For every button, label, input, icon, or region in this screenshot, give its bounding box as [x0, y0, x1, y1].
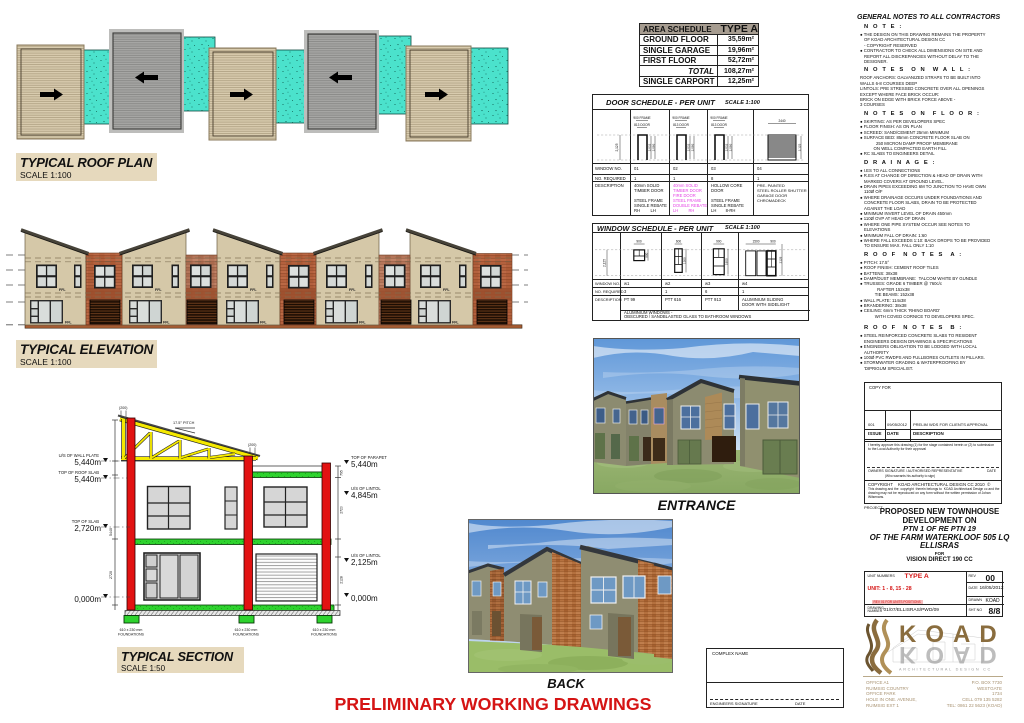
svg-text:900: 900: [770, 240, 776, 244]
svg-text:0,000m: 0,000m: [351, 594, 378, 603]
svg-text:FFL: FFL: [59, 288, 66, 292]
svg-text:2,720m: 2,720m: [74, 524, 101, 533]
svg-text:2,125: 2,125: [615, 143, 619, 151]
svg-text:(200): (200): [119, 406, 127, 410]
svg-text:813 DOOR: 813 DOOR: [673, 123, 689, 127]
svg-text:4,845m: 4,845m: [351, 491, 378, 500]
svg-text:813 DOOR: 813 DOOR: [634, 123, 650, 127]
svg-text:600: 600: [676, 240, 682, 244]
svg-text:795: 795: [340, 470, 344, 476]
svg-text:FFL: FFL: [443, 288, 450, 292]
svg-text:FOUNDATIONS: FOUNDATIONS: [311, 633, 337, 637]
svg-text:5440: 5440: [109, 528, 113, 536]
svg-text:2,086: 2,086: [729, 143, 733, 151]
svg-text:FFL: FFL: [260, 321, 267, 325]
svg-text:610 x 230 mm: 610 x 230 mm: [120, 628, 143, 632]
svg-text:2128: 2128: [340, 576, 344, 584]
svg-text:900 FRAME: 900 FRAME: [672, 116, 689, 120]
svg-text:FFL: FFL: [250, 288, 257, 292]
svg-text:2128: 2128: [779, 256, 783, 263]
svg-text:1500: 1500: [752, 240, 759, 244]
svg-text:KOAD: KOAD: [899, 641, 1003, 668]
svg-text:FFL: FFL: [65, 321, 72, 325]
svg-text:2720: 2720: [340, 506, 344, 514]
svg-text:2,086: 2,086: [691, 143, 695, 151]
svg-text:900 FRAME: 900 FRAME: [710, 116, 727, 120]
svg-text:17.5° PITCH: 17.5° PITCH: [173, 421, 195, 425]
svg-text:2,086: 2,086: [652, 143, 656, 151]
svg-text:610 x 230 mm: 610 x 230 mm: [313, 628, 336, 632]
svg-text:900: 900: [636, 240, 642, 244]
svg-text:2,125: 2,125: [798, 143, 802, 151]
svg-text:1500: 1500: [683, 257, 687, 264]
svg-text:FFL: FFL: [155, 288, 162, 292]
svg-text:ARCHITECTURAL DESIGN CC: ARCHITECTURAL DESIGN CC: [899, 668, 992, 672]
svg-text:2,125m: 2,125m: [351, 558, 378, 567]
svg-text:900: 900: [716, 240, 722, 244]
svg-text:FFL: FFL: [452, 321, 459, 325]
svg-text:FFL: FFL: [163, 321, 170, 325]
svg-text:2720: 2720: [109, 571, 113, 579]
svg-text:900: 900: [645, 252, 649, 257]
svg-text:FFL: FFL: [349, 288, 356, 292]
svg-text:0,000m: 0,000m: [74, 595, 101, 604]
svg-text:FFL: FFL: [359, 321, 366, 325]
svg-text:5,440m: 5,440m: [351, 460, 378, 469]
svg-text:2440: 2440: [778, 119, 785, 123]
svg-text:610 x 230 mm: 610 x 230 mm: [235, 628, 258, 632]
svg-text:1800: 1800: [725, 258, 729, 265]
svg-text:FOUNDATIONS: FOUNDATIONS: [118, 633, 144, 637]
svg-text:FOUNDATIONS: FOUNDATIONS: [233, 633, 259, 637]
svg-text:900 FRAME: 900 FRAME: [633, 116, 650, 120]
svg-text:5,440m: 5,440m: [74, 475, 101, 484]
svg-text:(200): (200): [248, 443, 256, 447]
svg-text:813 DOOR: 813 DOOR: [711, 123, 727, 127]
svg-text:2,125: 2,125: [603, 259, 607, 267]
svg-text:5,440m: 5,440m: [74, 458, 101, 467]
